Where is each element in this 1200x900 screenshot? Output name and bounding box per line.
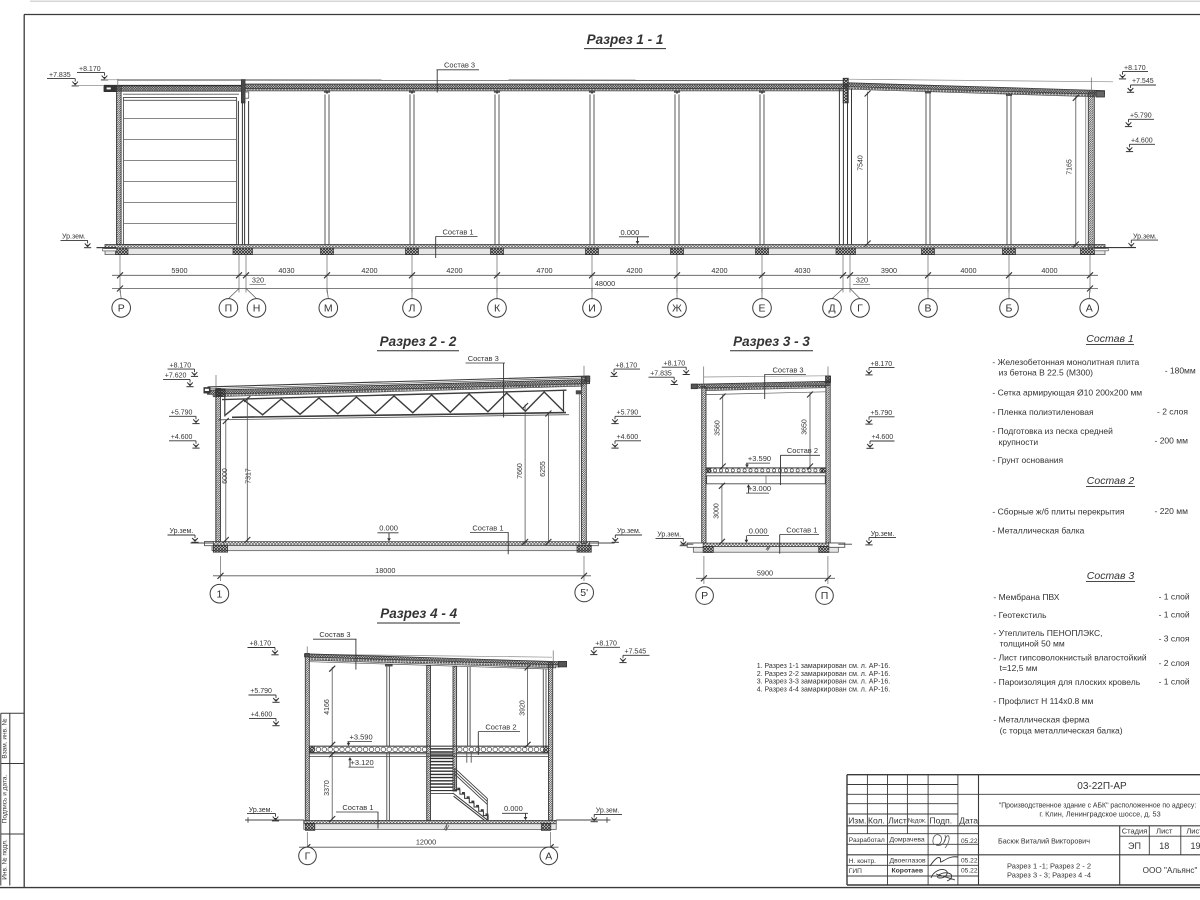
svg-text:Подпись и дата.: Подпись и дата.: [1, 775, 8, 824]
svg-text:К: К: [494, 303, 501, 315]
svg-text:- Геотекстиль: - Геотекстиль: [993, 610, 1047, 620]
svg-text:- Профлист Н 114х0.8 мм: - Профлист Н 114х0.8 мм: [993, 696, 1093, 706]
svg-text:+4.600: +4.600: [872, 434, 894, 441]
svg-text:48000: 48000: [595, 279, 615, 288]
svg-text:Ур.зем.: Ур.зем.: [249, 807, 273, 814]
svg-text:+7.545: +7.545: [625, 649, 647, 656]
svg-text:t=12,5 мм: t=12,5 мм: [1000, 663, 1038, 673]
svg-text:ГИП: ГИП: [849, 868, 862, 875]
svg-text:Разрез 3 - 3; Разрез 4 -4: Разрез 3 - 3; Разрез 4 -4: [1007, 870, 1091, 879]
svg-text:Р: Р: [701, 590, 708, 602]
svg-text:+8.170: +8.170: [616, 362, 638, 369]
svg-text:- 1 слой: - 1 слой: [1159, 610, 1190, 620]
svg-text:4000: 4000: [1041, 266, 1057, 275]
svg-text:Ур.зем.: Ур.зем.: [62, 234, 86, 241]
svg-text:М: М: [324, 303, 333, 315]
svg-text:Домрачева: Домрачева: [890, 837, 925, 844]
svg-text:+5.790: +5.790: [250, 688, 272, 695]
svg-text:- Железобетонная монолитная п: - Железобетонная монолитная плита: [992, 357, 1139, 367]
svg-text:1. Разрез 1-1 замаркирован см.: 1. Разрез 1-1 замаркирован см. л. АР-16.: [757, 663, 891, 670]
svg-text:+4.600: +4.600: [1131, 138, 1153, 145]
svg-text:3. Разрез 3-3 замаркирован см.: 3. Разрез 3-3 замаркирован см. л. АР-16.: [757, 679, 891, 686]
svg-text:Басюк Виталий Викторович: Басюк Виталий Викторович: [998, 836, 1090, 845]
svg-text:Ур.зем.: Ур.зем.: [871, 531, 895, 538]
svg-text:Изм.: Изм.: [848, 815, 866, 825]
svg-text:Состав 3: Состав 3: [773, 365, 804, 374]
svg-text:Разрез 2 - 2: Разрез 2 - 2: [380, 334, 457, 349]
svg-text:Разрез 4 - 4: Разрез 4 - 4: [380, 606, 457, 621]
svg-text:толщиной 50 мм: толщиной 50 мм: [1000, 639, 1065, 649]
svg-text:Взам. инв. №: Взам. инв. №: [1, 718, 8, 758]
svg-text:2. Разрез 2-2 замаркирован см.: 2. Разрез 2-2 замаркирован см. л. АР-16.: [757, 671, 891, 678]
svg-text:- Металлическая балка: - Металлическая балка: [992, 526, 1084, 536]
svg-text:Дата: Дата: [959, 815, 978, 825]
svg-text:6000: 6000: [222, 468, 229, 484]
svg-text:+8.170: +8.170: [595, 641, 617, 648]
svg-text:Г: Г: [305, 851, 311, 863]
svg-text:Состав 3: Состав 3: [444, 61, 475, 70]
svg-text:4166: 4166: [324, 699, 331, 715]
svg-text:Лист: Лист: [1186, 826, 1200, 835]
svg-text:Б: Б: [1006, 303, 1013, 315]
svg-text:Состав 1: Состав 1: [443, 227, 474, 236]
svg-text:Подп.: Подп.: [930, 815, 953, 825]
svg-text:3900: 3900: [881, 266, 897, 275]
svg-text:05.22: 05.22: [961, 838, 978, 845]
svg-text:4200: 4200: [361, 266, 377, 275]
svg-text:3000: 3000: [714, 503, 721, 519]
svg-text:5900: 5900: [171, 266, 187, 275]
svg-text:Ур.зем.: Ур.зем.: [596, 808, 620, 815]
svg-text:Р: Р: [118, 303, 125, 315]
svg-text:+3.590: +3.590: [350, 733, 373, 742]
svg-text:05.22: 05.22: [961, 858, 978, 865]
svg-text:В: В: [924, 303, 931, 315]
svg-text:18: 18: [1159, 841, 1169, 851]
svg-text:+8.170: +8.170: [79, 66, 101, 73]
svg-text:4700: 4700: [536, 266, 552, 275]
svg-text:А: А: [545, 851, 552, 863]
svg-text:Лист: Лист: [1156, 826, 1173, 835]
svg-text:- Лист гипсоволокнистый влагос: - Лист гипсоволокнистый влагостойкий: [993, 653, 1146, 663]
svg-text:+4.600: +4.600: [171, 434, 193, 441]
svg-text:4200: 4200: [446, 266, 462, 275]
svg-text:- 180мм: - 180мм: [1165, 366, 1196, 376]
svg-text:- 1 слой: - 1 слой: [1159, 677, 1190, 687]
svg-text:Состав 3: Состав 3: [468, 354, 499, 363]
svg-text:Состав 2: Состав 2: [485, 723, 516, 732]
svg-text:6255: 6255: [540, 461, 547, 477]
svg-text:7317: 7317: [245, 468, 252, 484]
svg-text:12000: 12000: [416, 838, 436, 847]
svg-text:+7.620: +7.620: [165, 373, 187, 380]
svg-text:Разработал: Разработал: [849, 836, 885, 844]
svg-text:4030: 4030: [794, 266, 810, 275]
svg-text:320: 320: [252, 275, 264, 284]
svg-text:+7.835: +7.835: [650, 370, 672, 377]
svg-text:П: П: [225, 303, 233, 315]
svg-text:05.22: 05.22: [961, 868, 978, 875]
svg-text:ЭП: ЭП: [1128, 841, 1141, 851]
svg-text:"Производственное здание с АБК: "Производственное здание с АБК" располож…: [999, 802, 1197, 809]
svg-text:Разрез 1 -1; Разрез 2 - 2: Разрез 1 -1; Разрез 2 - 2: [1007, 861, 1091, 870]
svg-text:Д: Д: [828, 303, 835, 315]
svg-text:0.000: 0.000: [379, 524, 398, 533]
svg-text:- 1 слой: - 1 слой: [1159, 592, 1190, 602]
svg-text:Н: Н: [253, 303, 261, 315]
svg-text:4200: 4200: [626, 266, 642, 275]
svg-text:- Металлическая ферма: - Металлическая ферма: [993, 715, 1089, 725]
svg-text:4. Разрез 4-4 замаркирован см.: 4. Разрез 4-4 замаркирован см. л. АР-16.: [757, 686, 891, 693]
svg-text:+8.170: +8.170: [664, 360, 686, 367]
svg-text:Л: Л: [409, 303, 416, 315]
svg-text:- Утеплитель ПЕНОПЛЭКС,: - Утеплитель ПЕНОПЛЭКС,: [993, 628, 1102, 638]
svg-text:Ур.зем.: Ур.зем.: [1133, 233, 1157, 240]
svg-text:+7.835: +7.835: [49, 72, 71, 79]
svg-text:4000: 4000: [960, 266, 976, 275]
svg-text:- 3 слоя: - 3 слоя: [1159, 634, 1190, 644]
svg-text:- Сборные ж/б плиты перекрытия: - Сборные ж/б плиты перекрытия: [992, 507, 1124, 517]
svg-text:Ур.зем.: Ур.зем.: [617, 528, 641, 535]
svg-text:Состав 2: Состав 2: [787, 446, 818, 455]
svg-text:3370: 3370: [324, 780, 331, 796]
svg-text:+8.170: +8.170: [871, 361, 893, 368]
svg-text:+7.545: +7.545: [1132, 78, 1154, 85]
svg-text:- 220 мм: - 220 мм: [1155, 506, 1189, 516]
svg-text:Ур.зем.: Ур.зем.: [170, 528, 194, 535]
svg-text:4030: 4030: [278, 266, 294, 275]
svg-text:- 2 слоя: - 2 слоя: [1157, 406, 1188, 416]
svg-text:г. Клин, Ленинградское шоссе,: г. Клин, Ленинградское шоссе, д. 53: [1039, 810, 1160, 819]
svg-text:Ж: Ж: [672, 303, 682, 315]
svg-text:- Грунт основания: - Грунт основания: [992, 455, 1063, 465]
svg-text:- Пленка полиэтиленовая: - Пленка полиэтиленовая: [992, 407, 1094, 417]
svg-text:Н. контр.: Н. контр.: [849, 858, 876, 865]
svg-text:5900: 5900: [757, 569, 773, 578]
svg-text:- Подготовка из песка средней: - Подготовка из песка средней: [992, 426, 1113, 436]
svg-text:крупности: крупности: [999, 437, 1039, 447]
svg-text:3650: 3650: [802, 419, 809, 435]
svg-text:+4.600: +4.600: [617, 434, 639, 441]
svg-text:- Сетка армирующая Ø10 200х200: - Сетка армирующая Ø10 200х200 мм: [992, 388, 1142, 398]
svg-text:Состав 1: Состав 1: [1086, 333, 1133, 345]
svg-text:19: 19: [1190, 841, 1200, 851]
svg-text:7660: 7660: [517, 463, 524, 479]
svg-text:+5.790: +5.790: [617, 410, 639, 417]
svg-text:Состав 2: Состав 2: [1087, 475, 1135, 487]
svg-text:+3.590: +3.590: [748, 454, 771, 463]
svg-text:Разрез 3 - 3: Разрез 3 - 3: [733, 334, 810, 349]
svg-text:5': 5': [580, 587, 588, 599]
svg-text:+5.790: +5.790: [871, 410, 893, 417]
svg-text:- 200 мм: - 200 мм: [1155, 436, 1189, 446]
svg-text:А: А: [1086, 303, 1093, 315]
svg-text:- Мембрана ПВХ: - Мембрана ПВХ: [993, 592, 1059, 602]
svg-text:18000: 18000: [375, 566, 395, 575]
svg-text:+5.790: +5.790: [1130, 113, 1152, 120]
svg-text:+8.170: +8.170: [170, 362, 192, 369]
svg-text:Состав 3: Состав 3: [319, 630, 350, 639]
svg-text:из бетона В 22.5 (М300): из бетона В 22.5 (М300): [999, 368, 1094, 378]
svg-text:Состав 1: Состав 1: [342, 803, 373, 812]
svg-text:Е: Е: [758, 303, 765, 315]
svg-text:+5.790: +5.790: [171, 410, 193, 417]
svg-text:+8.170: +8.170: [1124, 65, 1146, 72]
svg-text:Г: Г: [857, 303, 863, 315]
svg-text:Кол.: Кол.: [868, 815, 885, 825]
svg-text:+4.600: +4.600: [251, 712, 273, 719]
svg-text:№док.: №док.: [908, 818, 927, 825]
svg-text:3560: 3560: [714, 420, 721, 436]
svg-text:3920: 3920: [519, 700, 526, 716]
svg-text:Коротаев: Коротаев: [892, 868, 924, 875]
svg-text:0.000: 0.000: [749, 526, 768, 535]
svg-text:И: И: [588, 303, 596, 315]
svg-text:ООО "Альянс": ООО "Альянс": [1143, 866, 1198, 875]
svg-text:03-22П-АР: 03-22П-АР: [1077, 781, 1127, 792]
svg-text:- Пароизоляция для плоских кро: - Пароизоляция для плоских кровель: [993, 677, 1140, 687]
svg-text:Разрез 1 - 1: Разрез 1 - 1: [587, 32, 664, 47]
svg-text:4200: 4200: [711, 266, 727, 275]
svg-text:Состав 3: Состав 3: [1087, 570, 1135, 582]
svg-text:320: 320: [856, 275, 868, 284]
svg-text:Лист: Лист: [888, 815, 907, 825]
svg-text:Двоеглазов: Двоеглазов: [890, 858, 927, 865]
svg-text:0.000: 0.000: [504, 804, 523, 813]
svg-text:(с торца металлическая балка): (с торца металлическая балка): [1000, 726, 1123, 736]
svg-text:- 2 слоя: - 2 слоя: [1159, 658, 1190, 668]
svg-text:П: П: [821, 590, 829, 602]
svg-text:+3.000: +3.000: [748, 484, 771, 493]
svg-text:7165: 7165: [1067, 159, 1074, 175]
svg-text:Инв. № подл.: Инв. № подл.: [1, 839, 8, 880]
svg-text:7540: 7540: [858, 155, 865, 171]
svg-text:Ур.зем.: Ур.зем.: [657, 532, 681, 539]
svg-text:Состав 1: Состав 1: [472, 523, 503, 532]
svg-text:Состав 1: Состав 1: [786, 525, 817, 534]
svg-text:+8.170: +8.170: [250, 641, 272, 648]
svg-text:Стадия: Стадия: [1122, 826, 1148, 835]
svg-text:0.000: 0.000: [621, 228, 640, 237]
svg-text:+3.120: +3.120: [351, 758, 374, 767]
svg-text:1: 1: [216, 588, 222, 600]
